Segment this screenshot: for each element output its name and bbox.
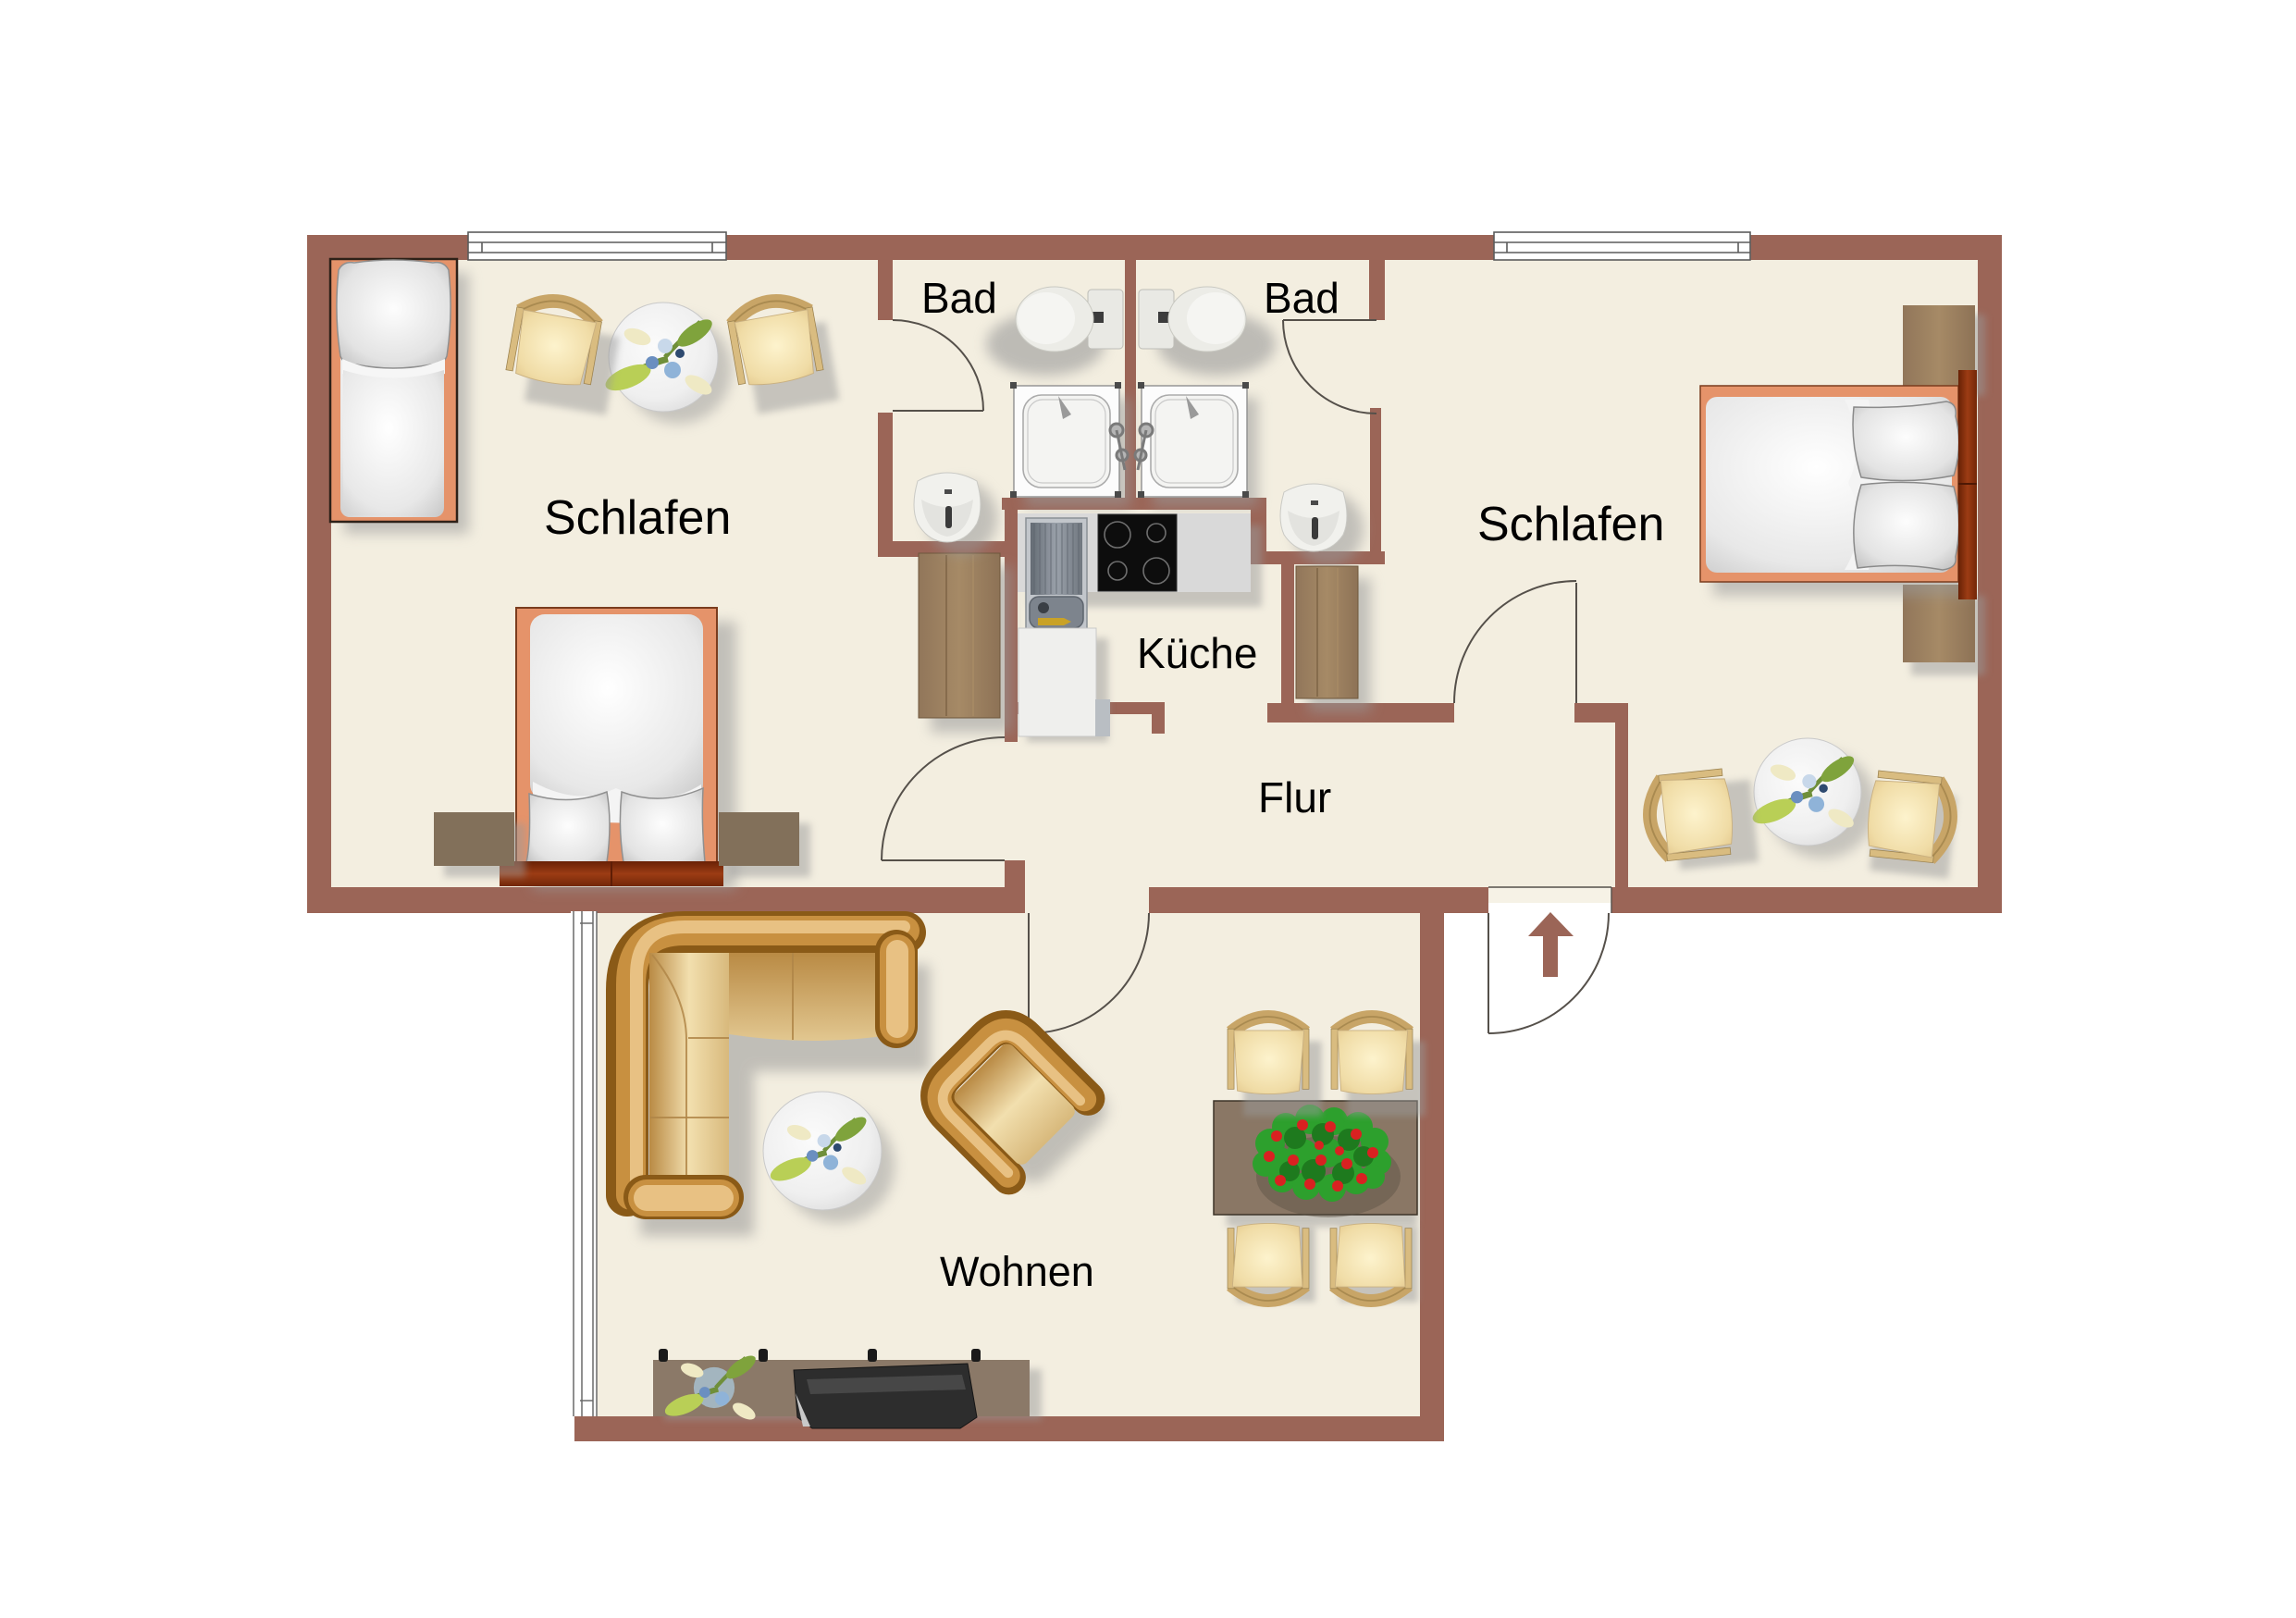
svg-text:Flur: Flur bbox=[1258, 773, 1331, 821]
svg-text:Bad: Bad bbox=[1264, 274, 1339, 322]
svg-text:Küche: Küche bbox=[1137, 629, 1257, 677]
svg-text:Schlafen: Schlafen bbox=[544, 491, 731, 545]
svg-text:Bad: Bad bbox=[921, 274, 997, 322]
svg-text:Wohnen: Wohnen bbox=[940, 1248, 1094, 1295]
svg-text:Schlafen: Schlafen bbox=[1477, 498, 1664, 551]
